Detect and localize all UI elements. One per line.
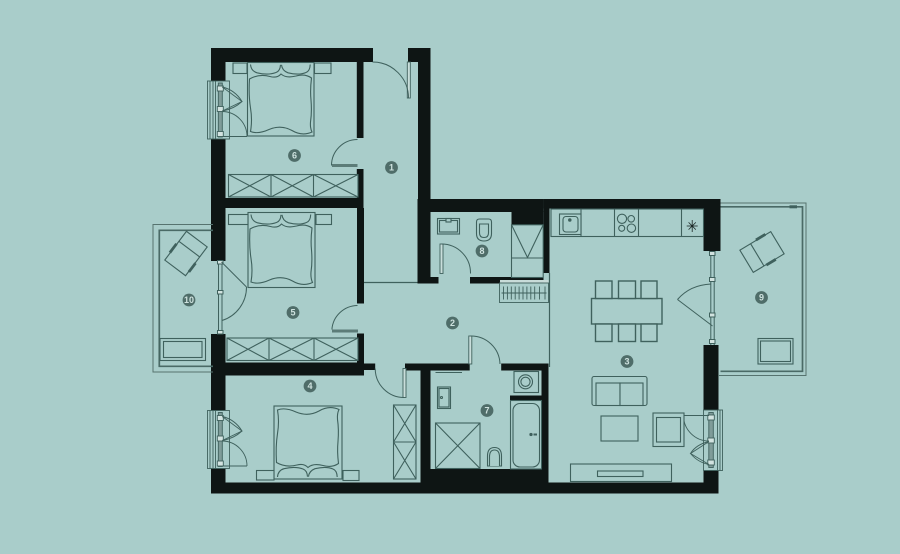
svg-text:4: 4 bbox=[307, 381, 312, 391]
svg-text:1: 1 bbox=[389, 163, 394, 173]
svg-text:10: 10 bbox=[184, 295, 194, 305]
svg-text:8: 8 bbox=[479, 246, 484, 256]
svg-text:6: 6 bbox=[292, 151, 297, 161]
svg-text:2: 2 bbox=[450, 318, 455, 328]
svg-text:5: 5 bbox=[290, 308, 295, 318]
svg-text:9: 9 bbox=[759, 293, 764, 303]
svg-text:7: 7 bbox=[484, 406, 489, 416]
svg-text:3: 3 bbox=[624, 357, 629, 367]
